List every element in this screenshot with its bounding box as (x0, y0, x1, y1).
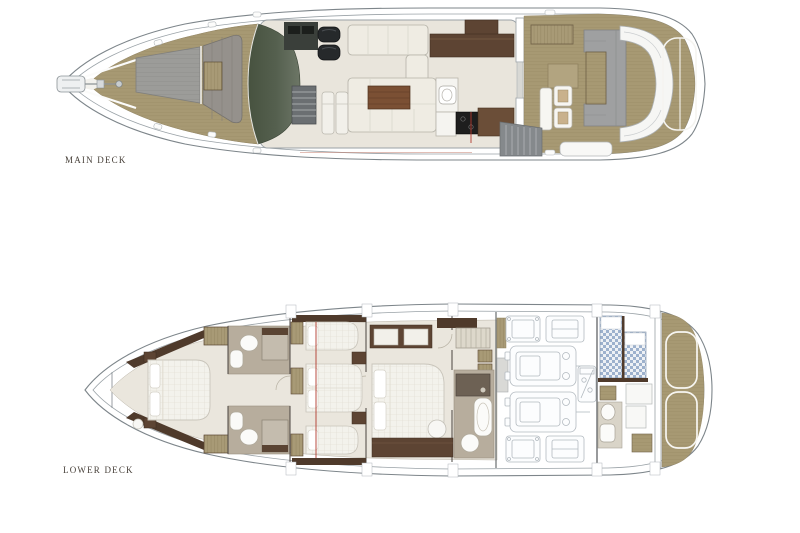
head-starboard-sink (240, 429, 258, 445)
crew-pillow-2 (625, 333, 645, 345)
master-dresser (372, 438, 453, 457)
head-starboard-shower-wall (262, 445, 288, 452)
vip-pillow-1 (150, 364, 160, 388)
galley-cabinet-upper (465, 20, 498, 36)
deck-plan-canvas: MAIN DECK (0, 0, 800, 533)
guest-nightstand-2 (352, 412, 366, 424)
cockpit-table (548, 64, 578, 88)
shower-drain (481, 388, 486, 393)
crew-pillow-1 (601, 317, 621, 329)
master-toilet (461, 434, 479, 452)
electrical-panel (578, 366, 596, 402)
guest-wardrobe-1 (291, 322, 303, 344)
guest-pillow-4 (308, 430, 318, 450)
gunwale-step (560, 142, 612, 156)
galley-counter (436, 112, 456, 136)
guest-nightstand-1 (352, 352, 366, 364)
master-chest-1 (374, 329, 398, 345)
cockpit-slat-bench (531, 25, 573, 44)
crew-storage-box (632, 434, 652, 452)
helm-display-1 (288, 26, 300, 34)
master-pillow-2 (374, 402, 386, 430)
cockpit-seat-base (540, 88, 552, 130)
yacht-deck-plans: MAIN DECK (0, 0, 800, 533)
salon-table (368, 86, 410, 109)
chaise-pad-1 (322, 92, 334, 134)
master-shower (456, 374, 490, 396)
guest-wardrobe-3 (291, 434, 303, 456)
master-chest-2 (404, 329, 428, 345)
stool-top-2 (558, 112, 568, 124)
crew-locker-2 (626, 406, 646, 428)
guest-pillow-3 (308, 390, 318, 408)
main-deck-plan: MAIN DECK (57, 8, 705, 165)
crew-cabin-wall (598, 378, 648, 382)
chaise-pad-2 (336, 92, 348, 134)
crew-locker-1 (626, 384, 652, 404)
head-starboard-toilet (230, 412, 243, 430)
head-port-sink (240, 335, 258, 351)
bow-cocktail-table (204, 62, 222, 90)
master-pillow-1 (374, 370, 386, 398)
crew-sink (600, 424, 615, 442)
guest-cabin-wall-bottom (292, 458, 366, 465)
guest-pillow-2 (308, 368, 318, 386)
crew-steps (600, 386, 616, 400)
engine-room-shelf (497, 318, 506, 348)
stair-wall (437, 318, 477, 328)
head-port-toilet (230, 350, 243, 368)
stove (456, 112, 478, 134)
guest-pillow-1 (308, 326, 318, 346)
vip-pillow-2 (150, 392, 160, 416)
cockpit-sofa-table (586, 52, 606, 104)
master-ottoman (428, 420, 446, 438)
crew-bunk-divider (622, 316, 625, 378)
vip-wardrobe-port (204, 327, 228, 345)
stair-drawer-1 (478, 350, 492, 362)
lower-deck-plan: LOWER DECK (63, 303, 712, 477)
vip-wardrobe-starboard (204, 435, 228, 453)
guest-cabin-wall-top (292, 315, 366, 322)
guest-wardrobe-2 (291, 368, 303, 394)
aft-bulkhead-top (516, 18, 524, 62)
transom-bulkhead (655, 312, 661, 468)
galley-cabinet-long (430, 34, 514, 57)
vip-stool (133, 419, 143, 429)
crew-toilet (601, 404, 615, 420)
helm-display-2 (302, 26, 314, 34)
patio-door (517, 62, 523, 98)
main-deck-label: MAIN DECK (65, 155, 127, 165)
head-port-shower-wall (262, 328, 288, 335)
lower-deck-label: LOWER DECK (63, 465, 134, 475)
stool-top-1 (558, 90, 568, 102)
